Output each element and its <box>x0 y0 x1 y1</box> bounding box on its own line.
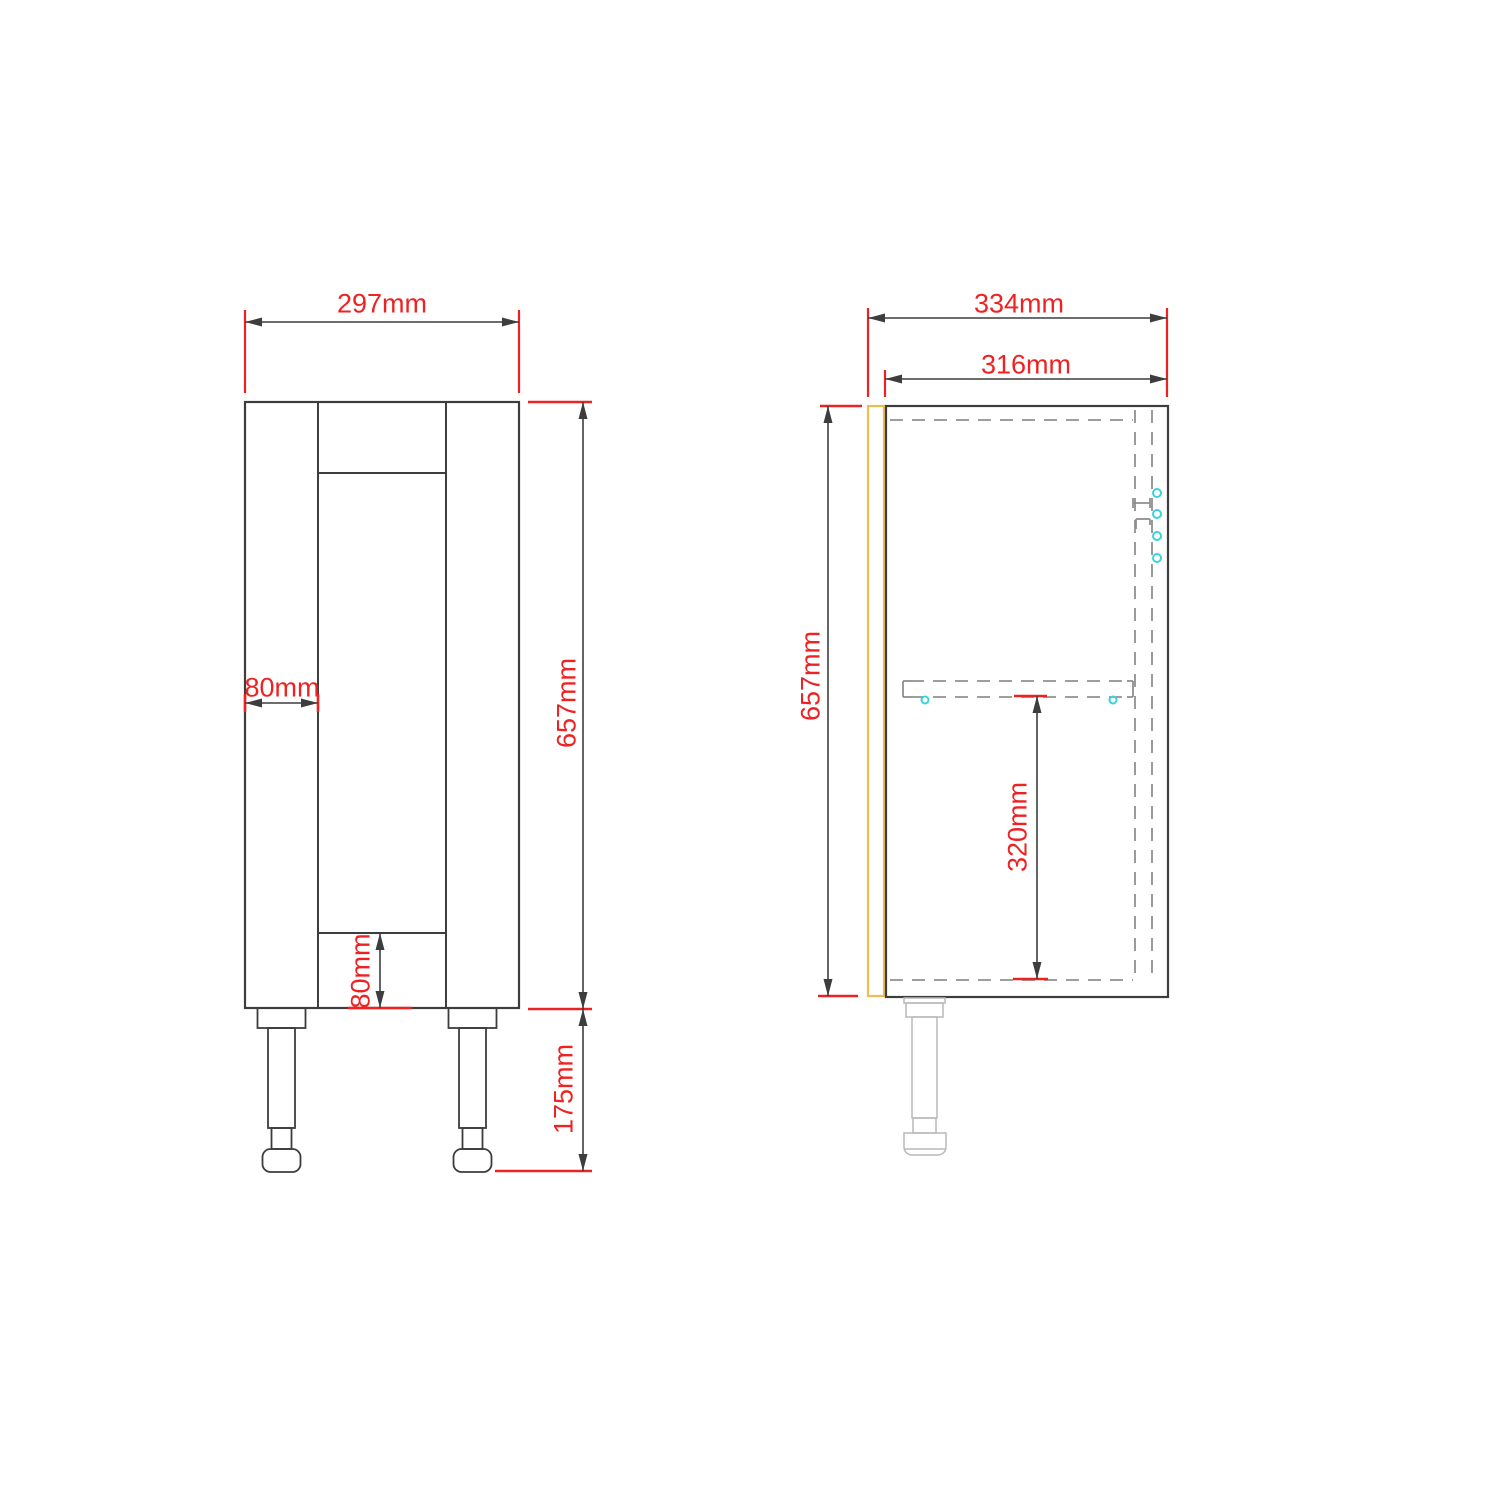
drawing-canvas: 297mm657mm175mm80mm80mm334mm316mm657mm32… <box>0 0 1500 1500</box>
technical-drawing-svg: 297mm657mm175mm80mm80mm334mm316mm657mm32… <box>0 0 1500 1500</box>
side-carcass-depth-dim-label: 316mm <box>981 349 1071 379</box>
side-shelf-height-dim-label: 320mm <box>1002 782 1032 872</box>
side-carcass-height-dim-label: 657mm <box>795 631 825 721</box>
front-cabinet-height-dim-label: 657mm <box>551 658 581 748</box>
drawing-background <box>0 0 1500 1500</box>
front-stile-width-dim-label: 80mm <box>244 672 319 702</box>
front-bottom-rail-dim-label: 80mm <box>345 933 375 1008</box>
front-overall-width-dim-label: 297mm <box>337 288 427 318</box>
front-leg-height-dim-label: 175mm <box>548 1044 578 1134</box>
side-overall-depth-dim-label: 334mm <box>974 288 1064 318</box>
